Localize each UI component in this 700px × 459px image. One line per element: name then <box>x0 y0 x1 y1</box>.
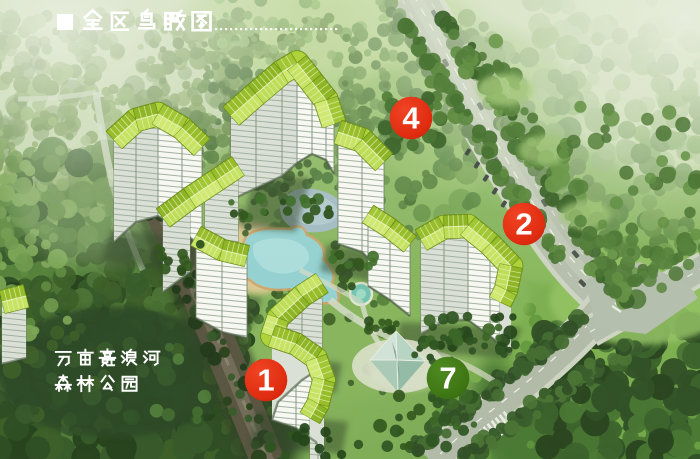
svg-text:7: 7 <box>439 361 456 396</box>
svg-text:1: 1 <box>257 363 274 398</box>
svg-text:2: 2 <box>515 207 532 242</box>
svg-text:4: 4 <box>402 101 420 136</box>
